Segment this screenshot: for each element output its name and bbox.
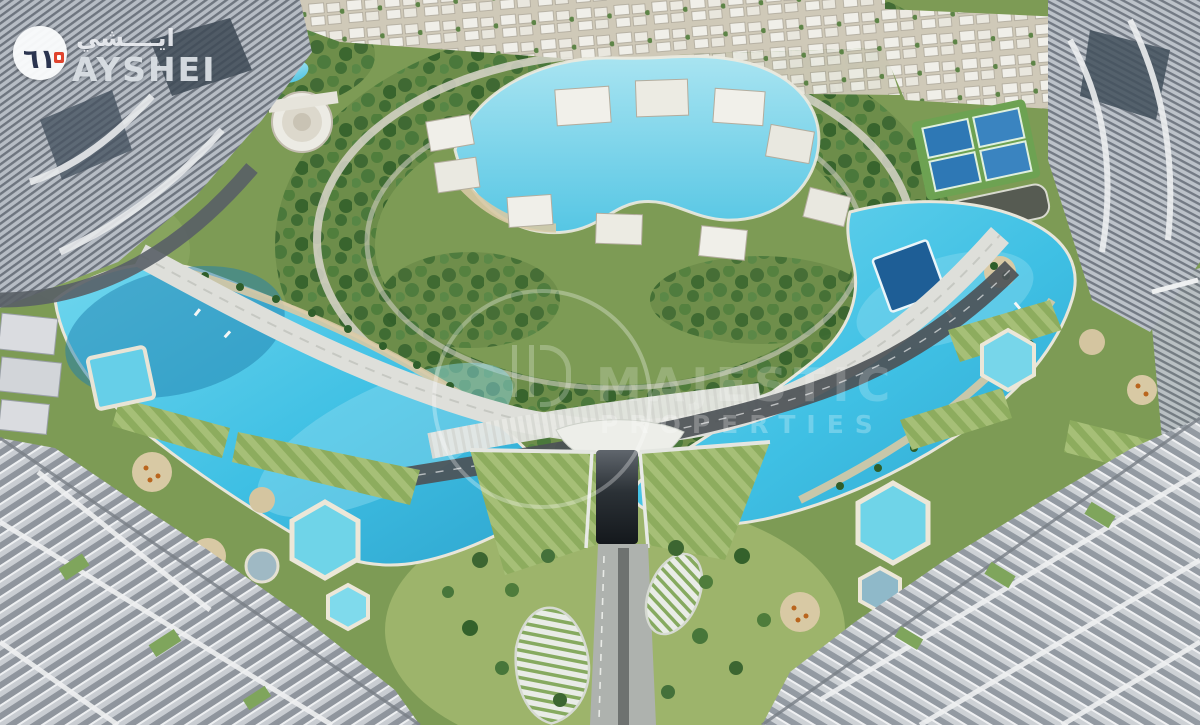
- hex-pool-right: [858, 483, 928, 563]
- aerial-masterplan-render: MAJESTIC PROPERTIES ٦١ ايــــشي AYSHEI: [0, 0, 1200, 725]
- hex-pond-upper-right: [982, 330, 1034, 390]
- hex-pool-left: [292, 502, 358, 578]
- scene-canvas: [0, 0, 1200, 725]
- tunnel-portal: [596, 450, 638, 544]
- deck-pool-left: [87, 347, 155, 410]
